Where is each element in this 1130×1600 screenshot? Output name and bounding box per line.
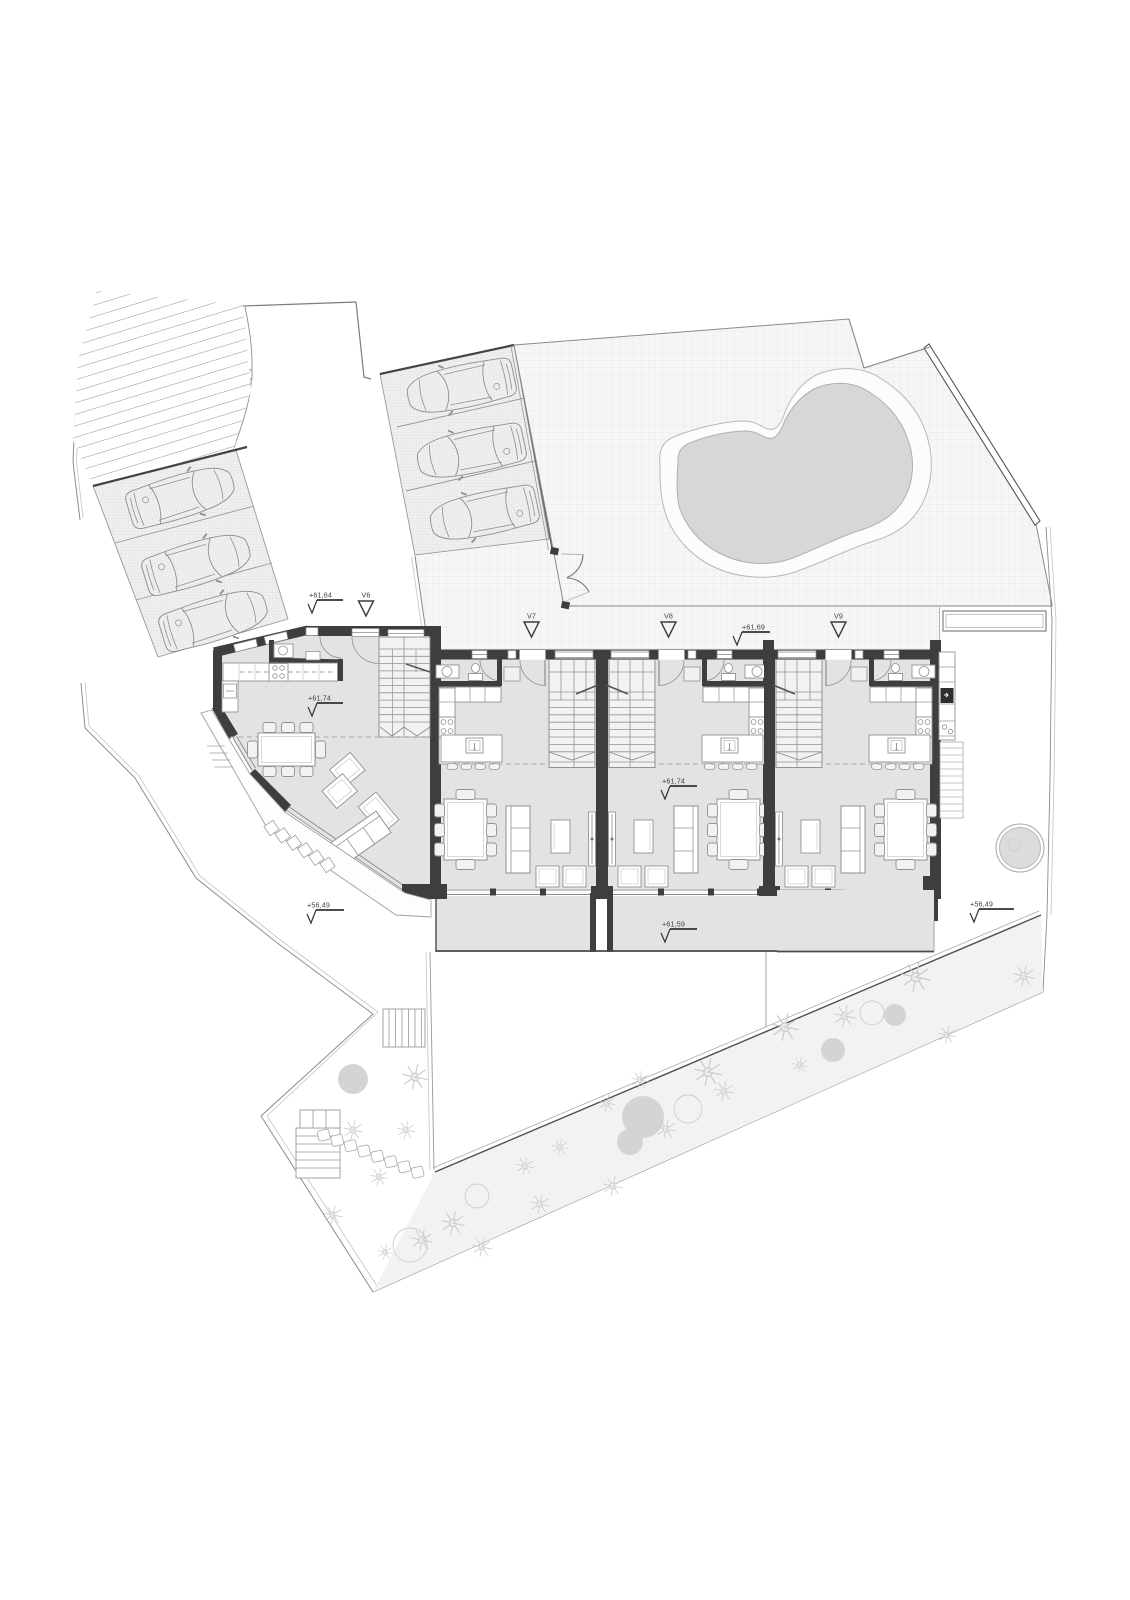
svg-text:V8: V8 bbox=[664, 612, 673, 621]
svg-text:+61,59: +61,59 bbox=[662, 920, 685, 929]
svg-text:+61,69: +61,69 bbox=[742, 623, 765, 632]
svg-text:V7: V7 bbox=[527, 612, 536, 621]
svg-text:V9: V9 bbox=[834, 612, 843, 621]
svg-text:+61,74: +61,74 bbox=[308, 694, 331, 703]
svg-text:+56,49: +56,49 bbox=[307, 901, 330, 910]
svg-text:V6: V6 bbox=[361, 591, 370, 600]
svg-text:+61,64: +61,64 bbox=[309, 591, 332, 600]
svg-text:+56,49: +56,49 bbox=[970, 900, 993, 909]
svg-text:+61,74: +61,74 bbox=[662, 777, 685, 786]
